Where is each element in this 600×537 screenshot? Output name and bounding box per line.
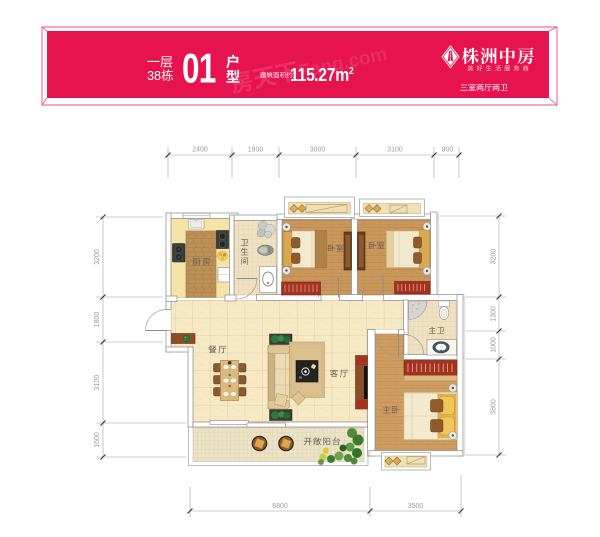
svg-text:3100: 3100 [387,147,403,154]
svg-text:1000: 1000 [491,337,498,353]
svg-text:1800: 1800 [248,147,264,154]
svg-text:3500: 3500 [408,503,424,510]
svg-text:01: 01 [182,44,216,92]
svg-text:3100: 3100 [94,375,101,391]
svg-text:1800: 1800 [94,312,101,328]
svg-text:3800: 3800 [491,399,498,415]
svg-text:38: 38 [147,69,161,83]
svg-text:115.27m2: 115.27m2 [290,64,354,86]
svg-text:900: 900 [442,147,454,154]
svg-text:3200: 3200 [94,249,101,265]
svg-text:2400: 2400 [192,147,208,154]
svg-text:6800: 6800 [272,503,288,510]
svg-text:1600: 1600 [94,432,101,448]
svg-text:3200: 3200 [491,249,498,265]
svg-text:1300: 1300 [491,306,498,322]
svg-text:3000: 3000 [310,147,326,154]
